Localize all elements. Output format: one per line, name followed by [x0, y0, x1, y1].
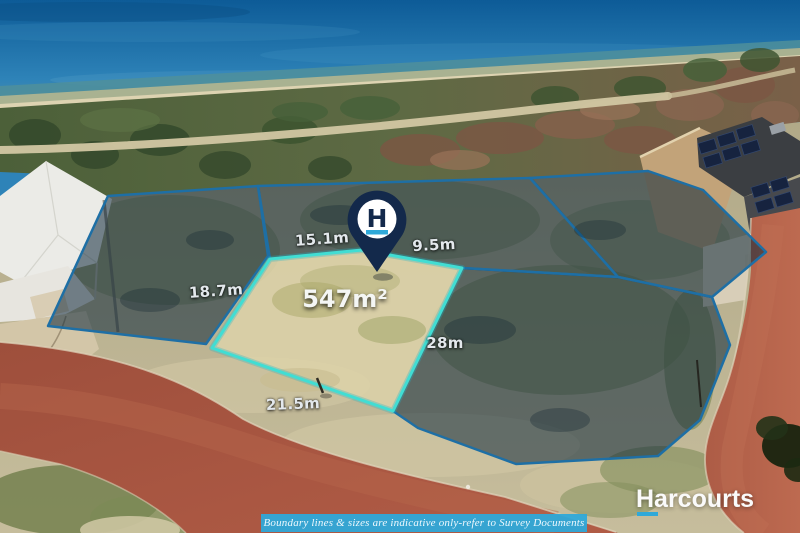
- listing-photo-frame: H 15.1m 9.5m 18.7m 28m 21.5m 547m² Harco…: [0, 0, 800, 533]
- pin-accent-bar: [366, 230, 388, 235]
- pin-logo-letter: H: [367, 204, 388, 233]
- lot-area-label: 547m²: [302, 285, 388, 313]
- disclaimer-banner: Boundary lines & sizes are indicative on…: [261, 514, 587, 532]
- measurement-label-right: 28m: [426, 334, 463, 352]
- harcourts-wordmark: Harcourts: [636, 485, 754, 514]
- harcourts-logo-accent-bar: [637, 512, 658, 516]
- measurement-label-left: 18.7m: [188, 280, 243, 302]
- measurement-label-top-left: 15.1m: [294, 228, 349, 250]
- measurement-label-top-right: 9.5m: [412, 235, 456, 255]
- aerial-photograph: H: [0, 0, 800, 533]
- measurement-label-bottom: 21.5m: [266, 394, 321, 414]
